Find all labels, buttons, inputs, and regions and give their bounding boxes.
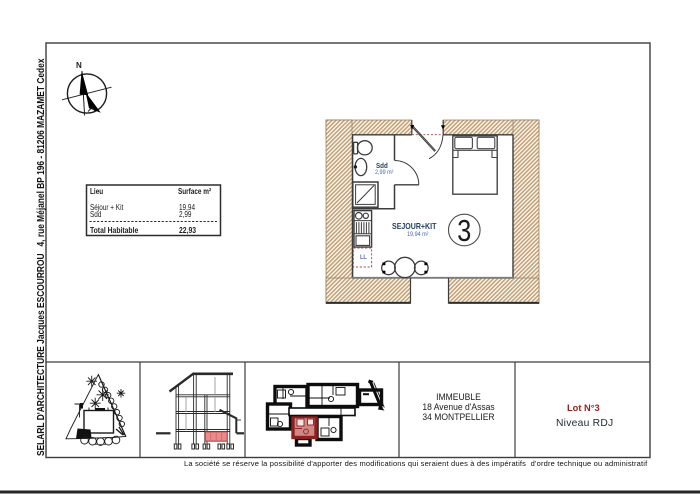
- svg-text:3: 3: [457, 214, 471, 248]
- svg-text:N: N: [76, 61, 82, 70]
